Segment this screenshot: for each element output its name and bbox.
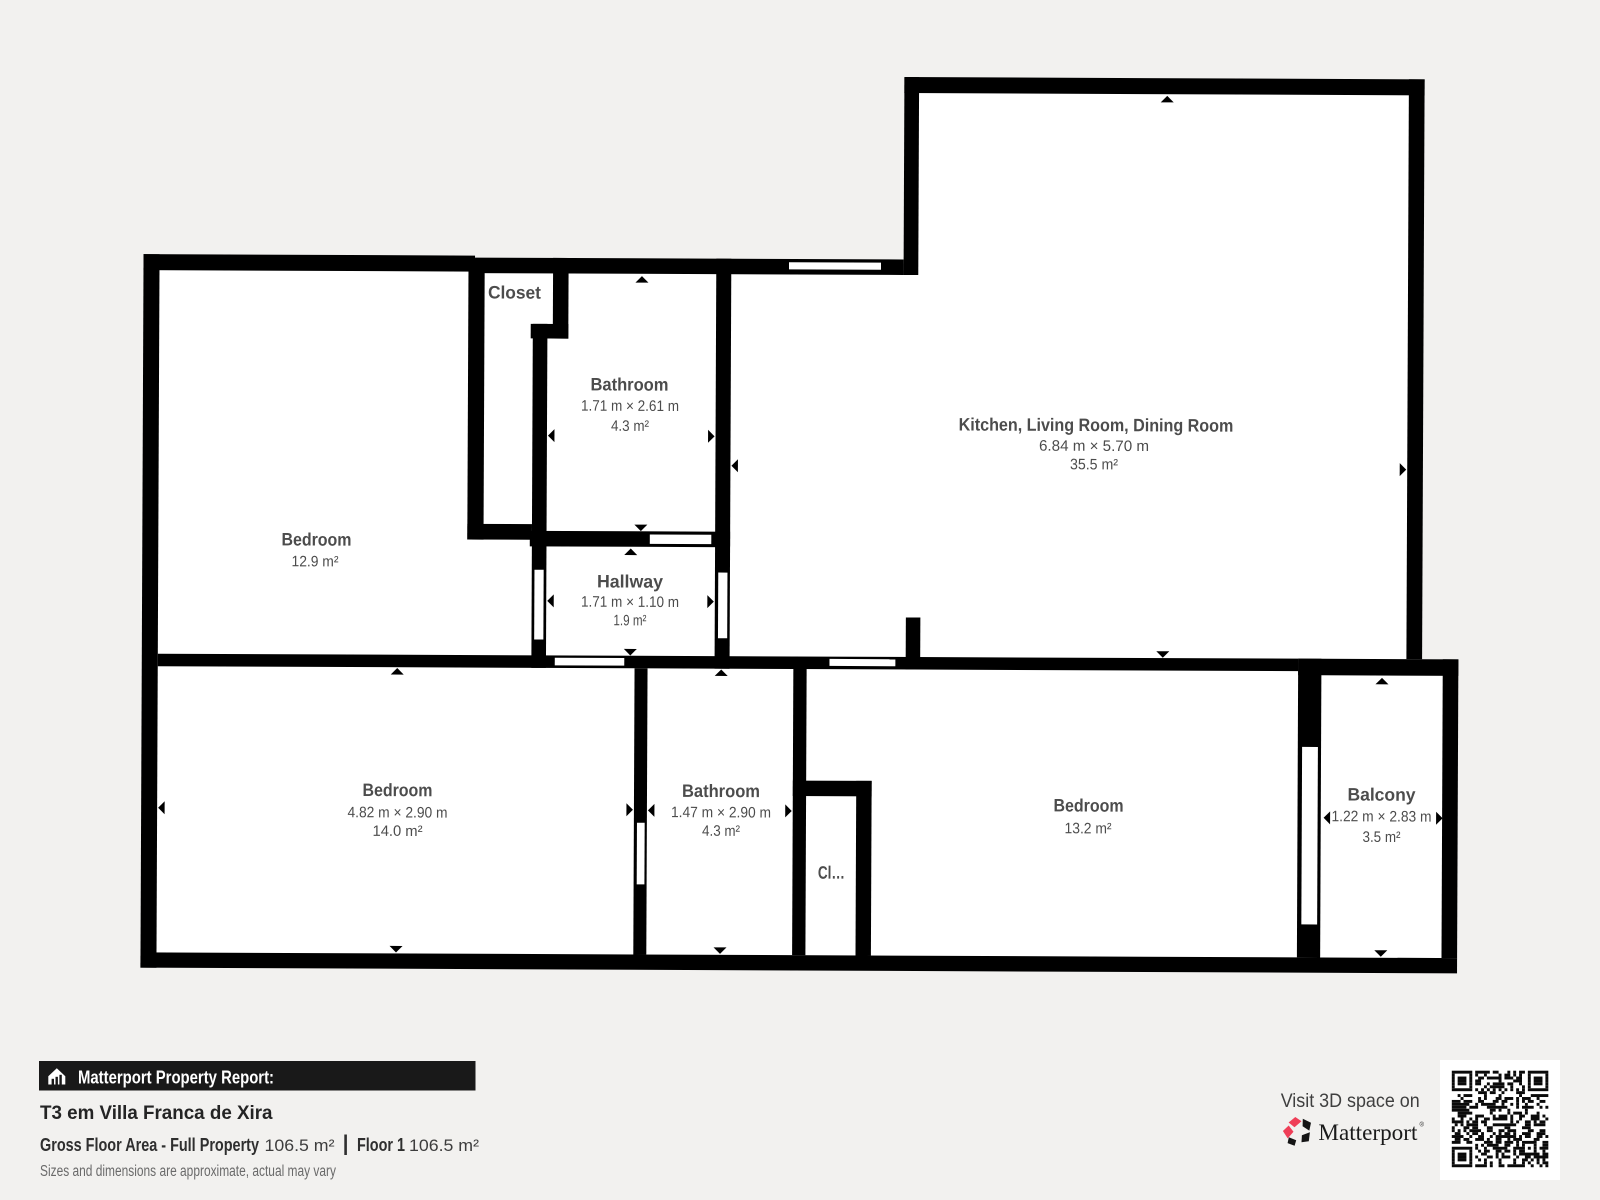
svg-text:3.5 m²: 3.5 m² xyxy=(1362,829,1400,846)
svg-text:1.9 m²: 1.9 m² xyxy=(613,612,646,629)
svg-text:1.47 m × 2.90 m: 1.47 m × 2.90 m xyxy=(671,804,771,821)
svg-text:Hallway: Hallway xyxy=(597,571,663,591)
svg-text:Cl…: Cl… xyxy=(818,863,845,883)
svg-text:Kitchen, Living Room, Dining R: Kitchen, Living Room, Dining Room xyxy=(959,414,1234,435)
svg-text:Closet: Closet xyxy=(488,282,541,302)
svg-text:14.0 m²: 14.0 m² xyxy=(372,823,422,840)
svg-text:Balcony: Balcony xyxy=(1347,784,1415,804)
svg-text:Sizes and dimensions are appro: Sizes and dimensions are approximate, ac… xyxy=(40,1163,336,1180)
svg-text:Bathroom: Bathroom xyxy=(682,781,760,801)
svg-text:Bathroom: Bathroom xyxy=(590,374,668,394)
svg-text:35.5 m²: 35.5 m² xyxy=(1070,456,1118,473)
svg-text:Bedroom: Bedroom xyxy=(281,529,351,549)
svg-text:106.5 m²: 106.5 m² xyxy=(265,1136,335,1155)
svg-text:Floor 1: Floor 1 xyxy=(357,1135,405,1155)
svg-text:Gross Floor Area - Full Proper: Gross Floor Area - Full Property xyxy=(40,1135,259,1155)
svg-text:Bedroom: Bedroom xyxy=(362,780,432,800)
svg-text:4.82 m × 2.90 m: 4.82 m × 2.90 m xyxy=(347,804,447,821)
svg-text:1.22 m × 2.83 m: 1.22 m × 2.83 m xyxy=(1331,808,1431,825)
svg-text:4.3 m²: 4.3 m² xyxy=(702,823,740,840)
svg-text:Matterport: Matterport xyxy=(1318,1120,1418,1145)
svg-text:T3 em Villa Franca de Xira: T3 em Villa Franca de Xira xyxy=(40,1102,273,1124)
svg-text:6.84 m × 5.70 m: 6.84 m × 5.70 m xyxy=(1039,438,1149,455)
svg-text:12.9 m²: 12.9 m² xyxy=(291,553,338,570)
svg-text:106.5 m²: 106.5 m² xyxy=(409,1136,479,1155)
svg-text:®: ® xyxy=(1420,1122,1425,1129)
svg-text:Visit 3D space on: Visit 3D space on xyxy=(1281,1090,1420,1112)
svg-text:13.2 m²: 13.2 m² xyxy=(1065,820,1112,837)
svg-text:Matterport Property Report:: Matterport Property Report: xyxy=(78,1067,274,1087)
svg-text:4.3 m²: 4.3 m² xyxy=(611,418,649,435)
svg-text:Bedroom: Bedroom xyxy=(1054,795,1124,815)
svg-text:1.71 m × 1.10 m: 1.71 m × 1.10 m xyxy=(581,594,679,611)
svg-text:1.71 m × 2.61 m: 1.71 m × 2.61 m xyxy=(581,398,679,415)
